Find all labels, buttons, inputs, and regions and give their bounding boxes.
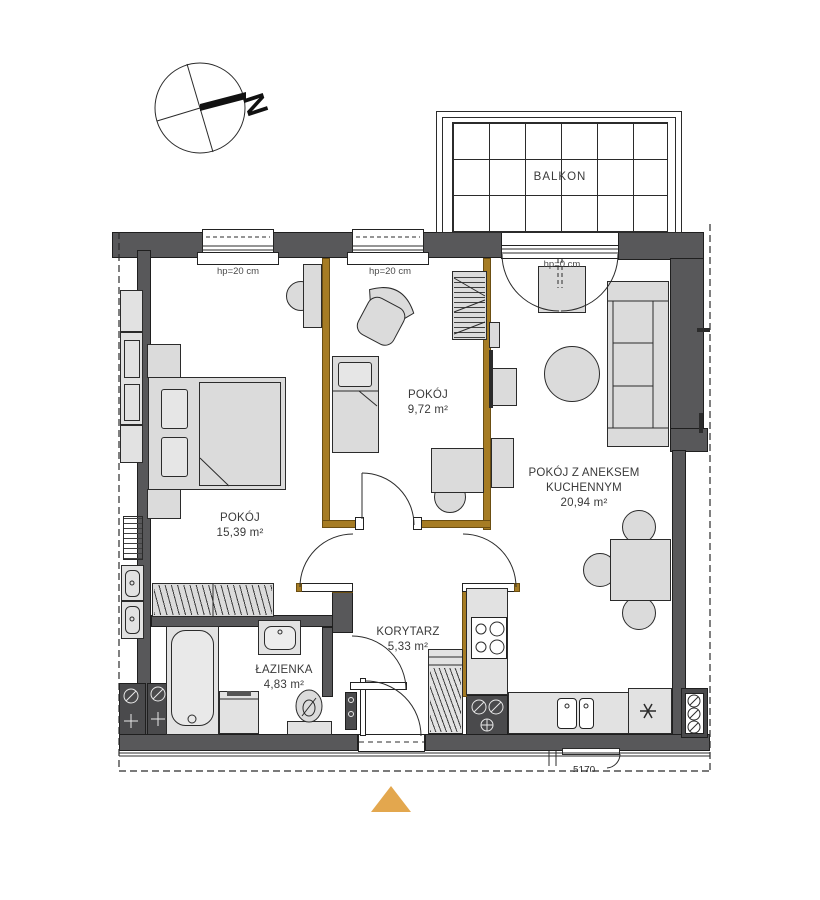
- neighbor-cabinet-2: [120, 332, 143, 425]
- tv-screen: [489, 350, 493, 408]
- bathtub: [166, 626, 219, 735]
- neighbor-sink-1: [121, 565, 144, 601]
- window1-label: hp=20 cm: [217, 266, 259, 277]
- threshold-large-room: [296, 583, 353, 592]
- threshold-jamb-gold-a: [296, 583, 302, 592]
- balcony-label: BALKON: [534, 170, 587, 185]
- compass-needle: [200, 92, 246, 111]
- stove: [471, 617, 507, 659]
- room-large-area: 15,39 m²: [217, 526, 264, 541]
- sink-basin-right: [579, 698, 594, 729]
- wall-top-b: [273, 232, 353, 258]
- floor-plan: BALKON: [0, 0, 820, 900]
- bathroom-area: 4,83 m²: [255, 678, 312, 693]
- room-large-name: POKÓJ: [217, 511, 264, 526]
- wall-top-c: [423, 232, 502, 258]
- washing-machine-lid: [227, 691, 251, 696]
- shaft-right-inner: [685, 693, 704, 734]
- window2-label: hp=20 cm: [369, 266, 411, 277]
- radiator: [345, 692, 357, 730]
- room-small-label: POKÓJ 9,72 m²: [408, 388, 448, 418]
- washing-machine: [219, 691, 259, 734]
- room-living-area: 20,94 m²: [529, 496, 640, 511]
- door-mat-rug: [538, 266, 586, 313]
- bottom-double-line: [119, 753, 710, 756]
- window2-sill: [347, 252, 429, 265]
- large-room-door-arc: [300, 534, 353, 587]
- bathroom-label: ŁAZIENKA 4,83 m²: [255, 663, 312, 693]
- wardrobe-large-room-hatch: [154, 585, 272, 615]
- balcony-door-sill: [501, 245, 619, 259]
- toilet-bowl-icon: [296, 690, 322, 722]
- corridor-label: KORYTARZ 5,33 m²: [376, 625, 439, 655]
- dining-table: [610, 539, 671, 601]
- wall-top-a: [112, 232, 203, 258]
- corridor-area: 5,33 m²: [376, 640, 439, 655]
- shaft-neighbor-left: [119, 683, 146, 735]
- jamb-small-room-b: [413, 517, 422, 530]
- wall-bottom-right: [425, 734, 710, 751]
- room-living-name-2: KUCHENNYM: [529, 481, 640, 496]
- bathroom-name: ŁAZIENKA: [255, 663, 312, 678]
- wall-bathroom-east: [322, 627, 333, 697]
- pillow-2: [161, 437, 188, 477]
- door-post: [332, 592, 353, 633]
- office-chair: [349, 279, 419, 351]
- balcony-door-label: hp=0 cm: [544, 259, 581, 270]
- compass-icon: N: [155, 63, 274, 153]
- round-rug: [544, 346, 600, 402]
- entrance-threshold: [358, 734, 425, 752]
- shaft-kitchen: [466, 695, 508, 735]
- partition-small-south-right: [417, 520, 491, 528]
- sofa: [607, 281, 669, 447]
- neighbor-door-label: 5170: [573, 764, 615, 772]
- entrance-marker: [371, 786, 411, 812]
- neighbor-cabinet-1: [120, 290, 143, 332]
- corridor-name: KORYTARZ: [376, 625, 439, 640]
- wall-bottom-left: [119, 734, 358, 751]
- neighbor-cabinet-3: [120, 425, 143, 463]
- threshold-jamb-gold-b: [514, 583, 520, 592]
- dining-chair-bottom: [622, 596, 656, 630]
- corridor-wardrobe-hatch: [430, 668, 461, 732]
- room-large-label: POKÓJ 15,39 m²: [217, 511, 264, 541]
- room-small-name: POKÓJ: [408, 388, 448, 403]
- nightstand-bottom: [147, 489, 181, 519]
- wall-right-upper: [670, 258, 704, 450]
- bathroom-door-leaf: [350, 682, 407, 690]
- room-living-label: POKÓJ Z ANEKSEM KUCHENNYM 20,94 m²: [529, 466, 640, 511]
- partition-large-small: [322, 258, 330, 522]
- wall-right-foot: [670, 428, 708, 452]
- neighbor-sink-2: [121, 601, 144, 639]
- jamb-small-room-a: [355, 517, 364, 530]
- sink-basin-left: [557, 698, 577, 729]
- shelf-small: [489, 322, 500, 348]
- desk-small-room: [431, 448, 484, 493]
- fridge: [628, 688, 672, 734]
- tv-cabinet-1: [491, 368, 517, 406]
- window2-frame: [352, 229, 424, 253]
- wardrobe-small-room-hatch: [454, 273, 485, 338]
- pillow-1: [161, 389, 188, 429]
- toilet-base: [287, 721, 332, 735]
- wall-top-right: [618, 232, 704, 260]
- neighbor-hatched-unit: [123, 516, 143, 560]
- living-room-door-arc: [463, 534, 516, 587]
- room-small-area: 9,72 m²: [408, 403, 448, 418]
- window1-sill: [197, 252, 279, 265]
- desk-large-room: [303, 264, 322, 328]
- room-living-name-1: POKÓJ Z ANEKSEM: [529, 466, 640, 481]
- window1-frame: [202, 229, 274, 253]
- small-room-door-arc: [362, 473, 414, 525]
- single-bed-pillow: [338, 362, 372, 387]
- compass-north-label: N: [236, 89, 274, 120]
- washbasin: [258, 620, 301, 655]
- nightstand-top: [147, 344, 181, 378]
- tv-cabinet-2: [491, 438, 514, 488]
